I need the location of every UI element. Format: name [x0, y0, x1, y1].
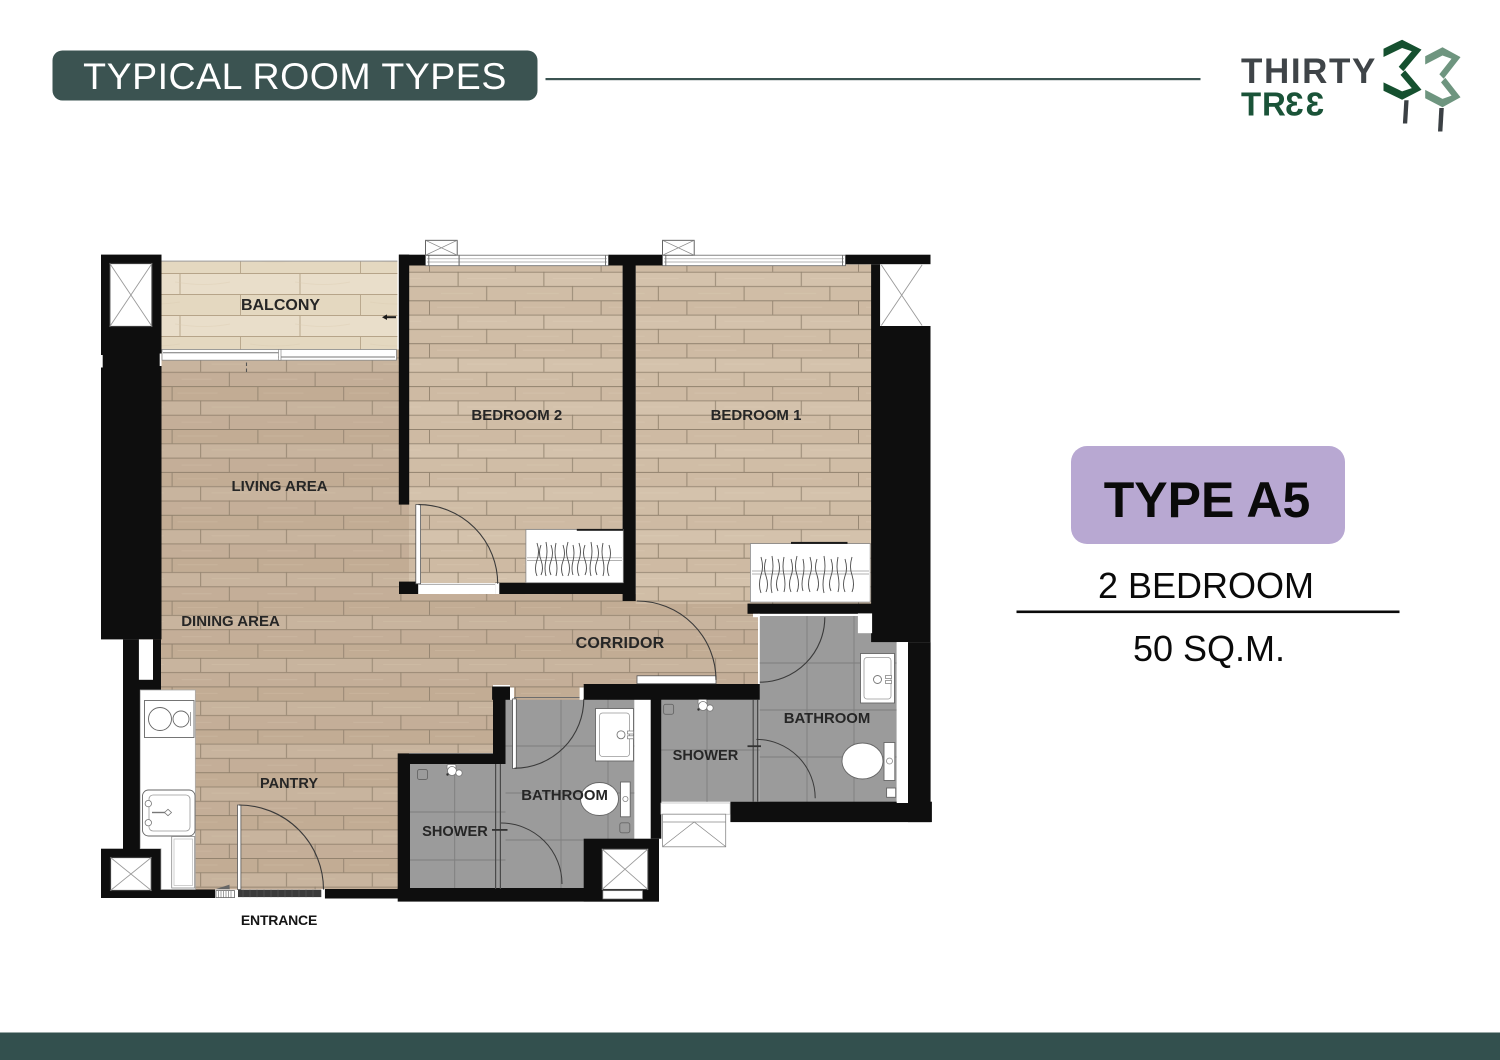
svg-text:50 SQ.M.: 50 SQ.M.	[1133, 628, 1285, 669]
svg-text:BEDROOM 1: BEDROOM 1	[711, 407, 802, 424]
svg-text:LIVING AREA: LIVING AREA	[231, 478, 327, 495]
svg-text:BALCONY: BALCONY	[241, 297, 320, 314]
svg-text:TYPICAL ROOM TYPES: TYPICAL ROOM TYPES	[83, 55, 507, 97]
svg-text:SHOWER: SHOWER	[422, 824, 488, 840]
svg-text:BATHROOM: BATHROOM	[521, 788, 608, 804]
svg-text:3: 3	[1306, 86, 1324, 123]
svg-text:SHOWER: SHOWER	[673, 748, 739, 764]
svg-text:3: 3	[1285, 86, 1303, 123]
svg-text:DINING AREA: DINING AREA	[181, 613, 280, 630]
svg-text:2 BEDROOM: 2 BEDROOM	[1098, 565, 1314, 606]
svg-text:ENTRANCE: ENTRANCE	[241, 912, 317, 928]
svg-text:BATHROOM: BATHROOM	[784, 711, 871, 727]
svg-text:T: T	[1241, 86, 1261, 123]
svg-text:PANTRY: PANTRY	[260, 776, 318, 792]
svg-text:BEDROOM 2: BEDROOM 2	[471, 407, 562, 424]
svg-text:TYPE A5: TYPE A5	[1104, 472, 1311, 528]
svg-text:CORRIDOR: CORRIDOR	[576, 635, 665, 652]
svg-text:R: R	[1262, 86, 1286, 123]
